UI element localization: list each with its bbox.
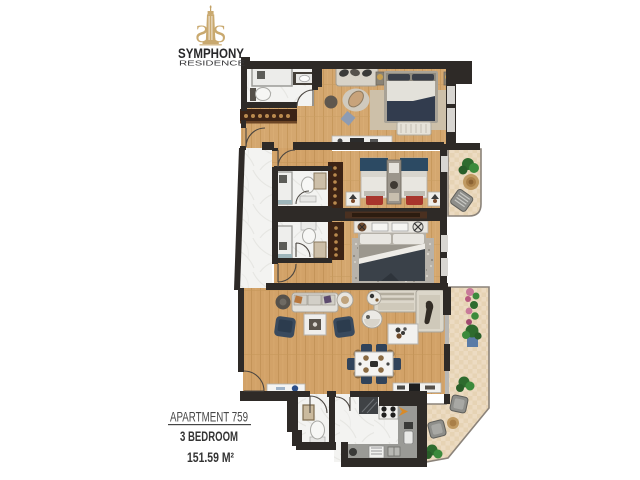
svg-text:151.59 M²: 151.59 M²: [187, 450, 234, 465]
svg-text:SYMPHONY: SYMPHONY: [178, 45, 245, 61]
svg-text:APARTMENT 759: APARTMENT 759: [170, 410, 248, 425]
svg-text:S: S: [213, 21, 227, 48]
svg-text:RESIDENCE: RESIDENCE: [179, 61, 246, 68]
svg-text:3 BEDROOM: 3 BEDROOM: [180, 429, 238, 444]
svg-text:S: S: [195, 21, 209, 48]
